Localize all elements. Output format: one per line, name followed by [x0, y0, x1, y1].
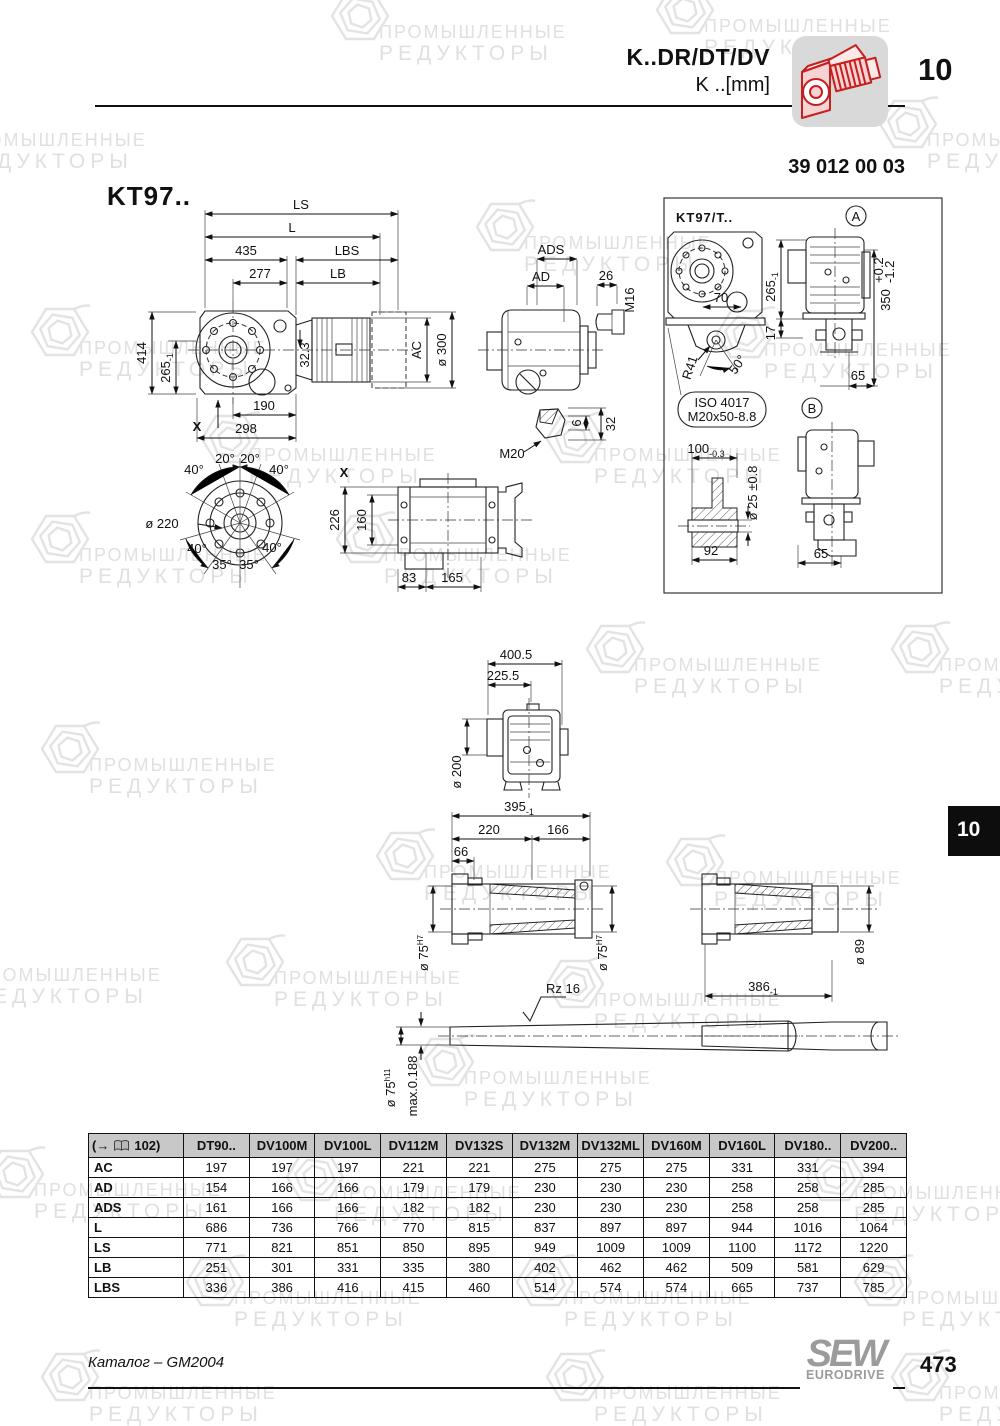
dim-rz16: Rz 16 [546, 981, 580, 996]
table-cell: 574 [578, 1278, 644, 1298]
table-cell: 629 [841, 1258, 907, 1278]
dim-dia75-h7-left: ø 75H7 [416, 934, 431, 971]
header-rule-right [888, 105, 905, 107]
table-cell: 301 [249, 1258, 315, 1278]
dim-70: 70 [714, 290, 728, 305]
table-cell: 949 [512, 1238, 578, 1258]
sew-logo-text: SEW [806, 1336, 885, 1372]
dim-400-5: 400.5 [500, 647, 533, 662]
dim-6: 6 [569, 419, 584, 426]
table-cell: 258 [709, 1198, 775, 1218]
table-cell: 1064 [841, 1218, 907, 1238]
table-cell: 1172 [775, 1238, 841, 1258]
flange-angle-view: 40° 20° 20° 40° 40° 35° 35° 40° ø 220 [145, 451, 300, 588]
table-cell: 851 [315, 1238, 381, 1258]
dim-65-b: 65 [814, 546, 828, 561]
dim-165: 165 [441, 570, 463, 585]
table-cell: 837 [512, 1218, 578, 1238]
table-cell: 275 [578, 1158, 644, 1178]
table-cell: 154 [184, 1178, 250, 1198]
dim-dia75-h11: ø 75h11 [383, 1068, 398, 1107]
table-ref-cell: (→ 102) [89, 1134, 184, 1158]
table-cell: 336 [184, 1278, 250, 1298]
table-cell: 182 [381, 1198, 447, 1218]
table-cell: 197 [315, 1158, 381, 1178]
dim-dia220: ø 220 [145, 516, 178, 531]
table-cell: 394 [841, 1158, 907, 1178]
dim-298: 298 [235, 421, 257, 436]
drawing-number: 39 012 00 03 [700, 156, 905, 179]
column-header-DV100L: DV100L [315, 1134, 381, 1158]
table-cell: 258 [775, 1198, 841, 1218]
hollow-shaft-right: ø 89 386-1 [690, 874, 898, 1050]
side-view-drawing: ADS AD 26 M16 32 6 M20 [478, 242, 637, 461]
dim-17: 17 [763, 326, 778, 340]
dimension-table: (→ 102) DT90..DV100MDV100LDV112MDV132SDV… [88, 1133, 907, 1298]
dim-lb: LB [330, 266, 346, 281]
dim-190: 190 [253, 398, 275, 413]
dim-166: 166 [547, 822, 569, 837]
column-header-DV132M: DV132M [512, 1134, 578, 1158]
table-cell: 285 [841, 1198, 907, 1218]
dim-m20: M20 [499, 446, 524, 461]
table-cell: 897 [578, 1218, 644, 1238]
table-cell: 1220 [841, 1238, 907, 1258]
table-cell: 285 [841, 1178, 907, 1198]
table-cell: 275 [512, 1158, 578, 1178]
dim-225-5: 225.5 [487, 668, 520, 683]
dim-265-t: 265-1 [763, 272, 780, 302]
table-cell: 166 [315, 1178, 381, 1198]
table-cell: 686 [184, 1218, 250, 1238]
table-cell: 258 [775, 1178, 841, 1198]
main-view-title: KT97.. [107, 181, 191, 212]
dim-32: 32 [603, 417, 618, 431]
page-title: K..DR/DT/DV [470, 44, 770, 71]
table-cell: 230 [512, 1198, 578, 1218]
t-view-title: KT97/T.. [676, 210, 733, 225]
table-row-AC: AC197197197221221275275275331331394 [89, 1158, 907, 1178]
table-cell: 771 [184, 1238, 250, 1258]
dim-395: 395-1 [504, 799, 534, 817]
chapter-number: 10 [918, 52, 952, 88]
table-cell: 462 [578, 1258, 644, 1278]
table-cell: 1100 [709, 1238, 775, 1258]
dim-dia75-h7-right: ø 75H7 [595, 934, 610, 971]
column-header-DT90: DT90.. [184, 1134, 250, 1158]
row-label: AD [89, 1178, 184, 1198]
dim-dia200: ø 200 [449, 755, 464, 788]
catalog-label: Каталог – GM2004 [88, 1354, 224, 1371]
dim-runout: max.0.188 [405, 1056, 420, 1117]
column-header-DV112M: DV112M [381, 1134, 447, 1158]
table-cell: 1016 [775, 1218, 841, 1238]
table-cell: 1009 [644, 1238, 710, 1258]
row-label: LBS [89, 1278, 184, 1298]
table-cell: 258 [709, 1178, 775, 1198]
table-row-L: L68673676677081583789789794410161064 [89, 1218, 907, 1238]
table-cell: 335 [381, 1258, 447, 1278]
dim-r41: R41 [679, 354, 701, 381]
table-cell: 331 [775, 1158, 841, 1178]
table-cell: 230 [644, 1198, 710, 1218]
table-cell: 415 [381, 1278, 447, 1298]
table-cell: 897 [644, 1218, 710, 1238]
column-header-DV132S: DV132S [446, 1134, 512, 1158]
ref-page: 102) [134, 1138, 160, 1153]
table-cell: 166 [249, 1178, 315, 1198]
angle-20-r: 20° [240, 451, 260, 466]
dim-dia89: ø 89 [852, 939, 867, 965]
dim-226: 226 [327, 509, 342, 531]
table-cell: 462 [644, 1258, 710, 1278]
table-row-LBS: LBS336386416415460514574574665737785 [89, 1278, 907, 1298]
row-label: ADS [89, 1198, 184, 1218]
dim-ads: ADS [538, 242, 565, 257]
table-cell: 386 [249, 1278, 315, 1298]
table-cell: 230 [512, 1178, 578, 1198]
table-cell: 574 [644, 1278, 710, 1298]
angle-40-tl: 40° [184, 462, 204, 477]
dim-32-3: 32.3 [297, 342, 312, 367]
x-section-view: 226 160 83 165 X [327, 465, 532, 592]
dim-l: L [288, 220, 295, 235]
table-cell: 821 [249, 1238, 315, 1258]
table-cell: 166 [315, 1198, 381, 1218]
angle-20-l: 20° [215, 451, 235, 466]
sew-logo: SEW EURODRIVE [806, 1336, 885, 1382]
table-cell: 230 [644, 1178, 710, 1198]
chapter-side-tab: 10 [948, 806, 1000, 856]
dim-ac: AC [409, 341, 424, 359]
kt97t-panel: KT97/T.. A 70 R41 50° ISO 4017 M20x50-8.… [664, 198, 942, 593]
table-cell: 766 [315, 1218, 381, 1238]
svg-text:-1.2: -1.2 [882, 261, 897, 283]
column-header-DV100M: DV100M [249, 1134, 315, 1158]
hollow-shaft-left: 395-1 220 166 66 ø 75H7 ø 75H7 Rz 16 [383, 799, 800, 1116]
iso-callout-line1: ISO 4017 [695, 395, 750, 410]
table-cell: 460 [446, 1278, 512, 1298]
angle-40-bl: 40° [187, 541, 207, 556]
page-header: K..DR/DT/DV K ..[mm] [470, 44, 770, 97]
dim-ad: AD [532, 269, 550, 284]
dim-lbs: LBS [335, 243, 360, 258]
angle-40-tr: 40° [269, 462, 289, 477]
table-cell: 221 [381, 1158, 447, 1178]
table-header-row: (→ 102) DT90..DV100MDV100LDV112MDV132SDV… [89, 1134, 907, 1158]
dim-220-s: 220 [478, 822, 500, 837]
table-cell: 331 [315, 1258, 381, 1278]
column-header-DV132ML: DV132ML [578, 1134, 644, 1158]
table-cell: 179 [381, 1178, 447, 1198]
table-cell: 736 [249, 1218, 315, 1238]
footer-rule-left [88, 1387, 800, 1389]
table-cell: 197 [184, 1158, 250, 1178]
table-cell: 1009 [578, 1238, 644, 1258]
dim-350: 350 +0.2 -1.2 [871, 257, 897, 311]
table-cell: 230 [578, 1178, 644, 1198]
table-cell: 944 [709, 1218, 775, 1238]
table-cell: 785 [841, 1278, 907, 1298]
table-cell: 179 [446, 1178, 512, 1198]
header-rule-left [95, 105, 792, 107]
mid-view-drawing: 400.5 225.5 ø 200 [449, 647, 568, 798]
page-number: 473 [920, 1352, 957, 1378]
table-cell: 182 [446, 1198, 512, 1218]
iso-callout-line2: M20x50-8.8 [688, 409, 757, 424]
detail-b-marker: B [808, 401, 817, 416]
main-view-drawing: LS L 435 LBS 277 LB 414 265-1 190 298 X … [134, 197, 456, 442]
table-row-LS: LS77182185185089594910091009110011721220 [89, 1238, 907, 1258]
table-cell: 416 [315, 1278, 381, 1298]
angle-35-r: 35° [239, 557, 259, 572]
dim-435: 435 [235, 243, 257, 258]
table-cell: 815 [446, 1218, 512, 1238]
gearmotor-icon-box [792, 36, 888, 127]
table-cell: 895 [446, 1238, 512, 1258]
table-cell: 380 [446, 1258, 512, 1278]
page-subtitle: K ..[mm] [470, 74, 770, 97]
table-cell: 737 [775, 1278, 841, 1298]
table-cell: 230 [578, 1198, 644, 1218]
gearmotor-icon [792, 36, 888, 127]
dim-386: 386-1 [748, 979, 778, 997]
dim-65-a: 65 [851, 368, 865, 383]
row-label: AC [89, 1158, 184, 1178]
dim-26: 26 [599, 268, 613, 283]
table-cell: 770 [381, 1218, 447, 1238]
table-cell: 251 [184, 1258, 250, 1278]
table-cell: 197 [249, 1158, 315, 1178]
dim-50deg: 50° [726, 352, 750, 377]
svg-text:350: 350 [878, 289, 893, 311]
dim-66: 66 [454, 844, 468, 859]
row-label: LS [89, 1238, 184, 1258]
column-header-DV200: DV200.. [841, 1134, 907, 1158]
eurodrive-logo-text: EURODRIVE [806, 1368, 885, 1382]
dim-265: 265-1 [158, 353, 175, 383]
dim-83: 83 [402, 570, 416, 585]
dim-ls: LS [293, 197, 309, 212]
view-marker-x: X [340, 465, 349, 480]
table-cell: 665 [709, 1278, 775, 1298]
catalog-page: { "header": { "model": "K..DR/DT/DV", "u… [0, 0, 1000, 1415]
table-cell: 581 [775, 1258, 841, 1278]
footer-rule-right [893, 1387, 905, 1389]
row-label: LB [89, 1258, 184, 1278]
angle-40-br: 40° [262, 540, 282, 555]
table-cell: 850 [381, 1238, 447, 1258]
section-marker-x: X [193, 419, 202, 434]
dim-100: 100-0.3 [687, 441, 724, 459]
dim-277: 277 [249, 266, 271, 281]
dim-414: 414 [134, 342, 149, 364]
table-cell: 166 [249, 1198, 315, 1218]
dim-dia300: ø 300 [434, 333, 449, 366]
table-cell: 221 [446, 1158, 512, 1178]
table-row-ADS: ADS161166166182182230230230258258285 [89, 1198, 907, 1218]
table-cell: 509 [709, 1258, 775, 1278]
book-icon [113, 1139, 130, 1152]
row-label: L [89, 1218, 184, 1238]
dim-m16: M16 [622, 287, 637, 312]
dim-160: 160 [354, 509, 369, 531]
dim-dia25: ø 25 ±0.8 [745, 466, 760, 521]
angle-35-l: 35° [212, 557, 232, 572]
table-row-LB: LB251301331335380402462462509581629 [89, 1258, 907, 1278]
column-header-DV160M: DV160M [644, 1134, 710, 1158]
table-cell: 161 [184, 1198, 250, 1218]
table-row-AD: AD154166166179179230230230258258285 [89, 1178, 907, 1198]
detail-a-marker: A [852, 209, 861, 224]
table-cell: 402 [512, 1258, 578, 1278]
ref-open: (→ [92, 1138, 109, 1153]
dim-92: 92 [704, 543, 718, 558]
table-cell: 514 [512, 1278, 578, 1298]
table-cell: 331 [709, 1158, 775, 1178]
table-cell: 275 [644, 1158, 710, 1178]
column-header-DV160L: DV160L [709, 1134, 775, 1158]
column-header-DV180: DV180.. [775, 1134, 841, 1158]
